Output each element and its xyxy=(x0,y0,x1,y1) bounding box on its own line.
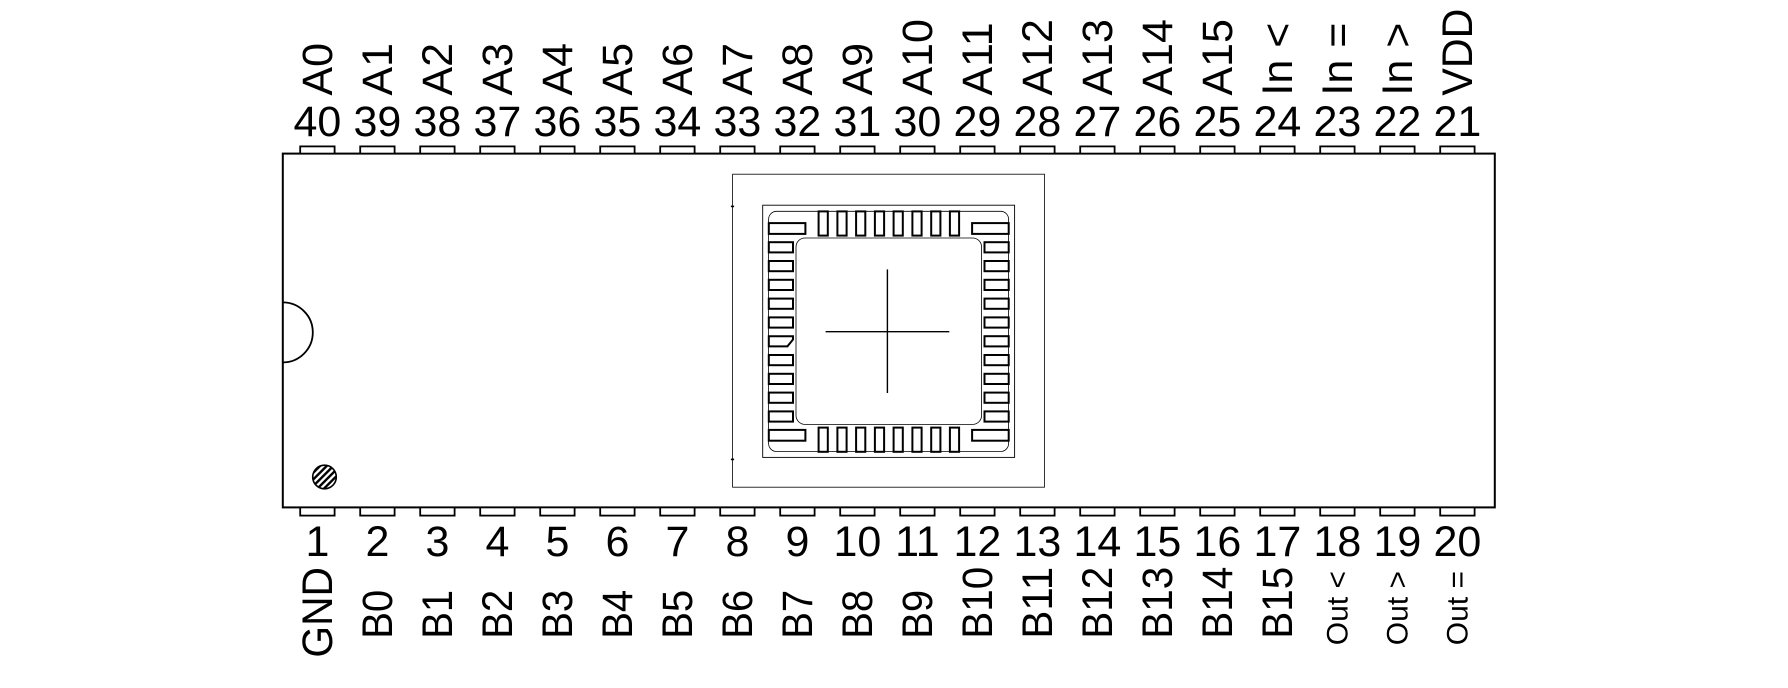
svg-text:40: 40 xyxy=(293,98,341,146)
svg-text:A10: A10 xyxy=(894,19,942,96)
svg-text:B2: B2 xyxy=(474,590,522,639)
svg-text:VDD: VDD xyxy=(1434,9,1482,96)
svg-text:Out =: Out = xyxy=(1442,571,1475,645)
svg-text:16: 16 xyxy=(1193,518,1241,566)
svg-text:31: 31 xyxy=(833,98,881,146)
svg-text:20: 20 xyxy=(1433,518,1481,566)
svg-text:A3: A3 xyxy=(474,43,522,96)
svg-text:37: 37 xyxy=(473,98,521,146)
svg-text:A1: A1 xyxy=(354,43,402,96)
svg-text:14: 14 xyxy=(1073,518,1121,566)
svg-text:12: 12 xyxy=(953,518,1001,566)
svg-text:B6: B6 xyxy=(714,590,762,639)
svg-text:10: 10 xyxy=(833,518,881,566)
svg-text:5: 5 xyxy=(545,518,569,566)
svg-text:33: 33 xyxy=(713,98,761,146)
svg-text:22: 22 xyxy=(1373,98,1421,146)
svg-text:15: 15 xyxy=(1133,518,1181,566)
svg-text:A15: A15 xyxy=(1194,19,1242,96)
svg-text:A2: A2 xyxy=(414,43,462,96)
svg-text:B5: B5 xyxy=(654,590,702,639)
svg-text:A11: A11 xyxy=(954,22,1002,95)
svg-text:34: 34 xyxy=(653,98,701,146)
svg-text:B0: B0 xyxy=(354,590,402,639)
svg-text:19: 19 xyxy=(1373,518,1421,566)
svg-text:2: 2 xyxy=(365,518,389,566)
svg-text:26: 26 xyxy=(1133,98,1181,146)
svg-text:8: 8 xyxy=(725,518,749,566)
svg-text:6: 6 xyxy=(605,518,629,566)
svg-text:B10: B10 xyxy=(954,567,1002,639)
svg-text:In <: In < xyxy=(1254,23,1302,96)
svg-text:In =: In = xyxy=(1314,23,1362,96)
svg-text:21: 21 xyxy=(1433,98,1481,146)
svg-text:B12: B12 xyxy=(1074,567,1122,639)
svg-text:B7: B7 xyxy=(774,590,822,639)
svg-text:18: 18 xyxy=(1313,518,1361,566)
svg-text:11: 11 xyxy=(895,518,940,566)
svg-text:A13: A13 xyxy=(1074,19,1122,96)
svg-text:A14: A14 xyxy=(1134,19,1182,96)
svg-text:B9: B9 xyxy=(894,590,942,639)
svg-text:9: 9 xyxy=(785,518,809,566)
svg-text:36: 36 xyxy=(533,98,581,146)
svg-text:1: 1 xyxy=(305,518,329,566)
svg-text:A12: A12 xyxy=(1014,19,1062,96)
svg-text:A5: A5 xyxy=(594,43,642,96)
svg-text:38: 38 xyxy=(413,98,461,146)
svg-text:Out >: Out > xyxy=(1382,571,1415,645)
svg-text:27: 27 xyxy=(1073,98,1121,146)
svg-text:28: 28 xyxy=(1013,98,1061,146)
svg-text:29: 29 xyxy=(953,98,1001,146)
svg-text:B1: B1 xyxy=(414,590,462,639)
svg-text:GND: GND xyxy=(294,567,342,658)
svg-text:A9: A9 xyxy=(834,43,882,96)
svg-text:In >: In > xyxy=(1374,23,1422,96)
svg-text:Out <: Out < xyxy=(1322,571,1355,645)
svg-text:3: 3 xyxy=(425,518,449,566)
svg-text:B4: B4 xyxy=(594,590,642,639)
svg-text:A4: A4 xyxy=(534,43,582,96)
svg-text:B8: B8 xyxy=(834,590,882,639)
svg-text:A8: A8 xyxy=(774,43,822,96)
svg-text:B15: B15 xyxy=(1254,567,1302,639)
svg-text:17: 17 xyxy=(1253,518,1301,566)
svg-text:7: 7 xyxy=(665,518,689,566)
svg-text:B14: B14 xyxy=(1194,567,1242,639)
svg-text:32: 32 xyxy=(773,98,821,146)
svg-text:13: 13 xyxy=(1013,518,1061,566)
svg-text:23: 23 xyxy=(1313,98,1361,146)
svg-text:B13: B13 xyxy=(1134,567,1182,639)
svg-text:4: 4 xyxy=(485,518,509,566)
svg-text:39: 39 xyxy=(353,98,401,146)
svg-text:B11: B11 xyxy=(1014,567,1062,639)
svg-text:A0: A0 xyxy=(294,43,342,96)
svg-text:A6: A6 xyxy=(654,43,702,96)
svg-text:24: 24 xyxy=(1253,98,1301,146)
svg-text:25: 25 xyxy=(1193,98,1241,146)
svg-text:A7: A7 xyxy=(714,43,762,96)
svg-text:30: 30 xyxy=(893,98,941,146)
svg-text:35: 35 xyxy=(593,98,641,146)
svg-text:B3: B3 xyxy=(534,590,582,639)
